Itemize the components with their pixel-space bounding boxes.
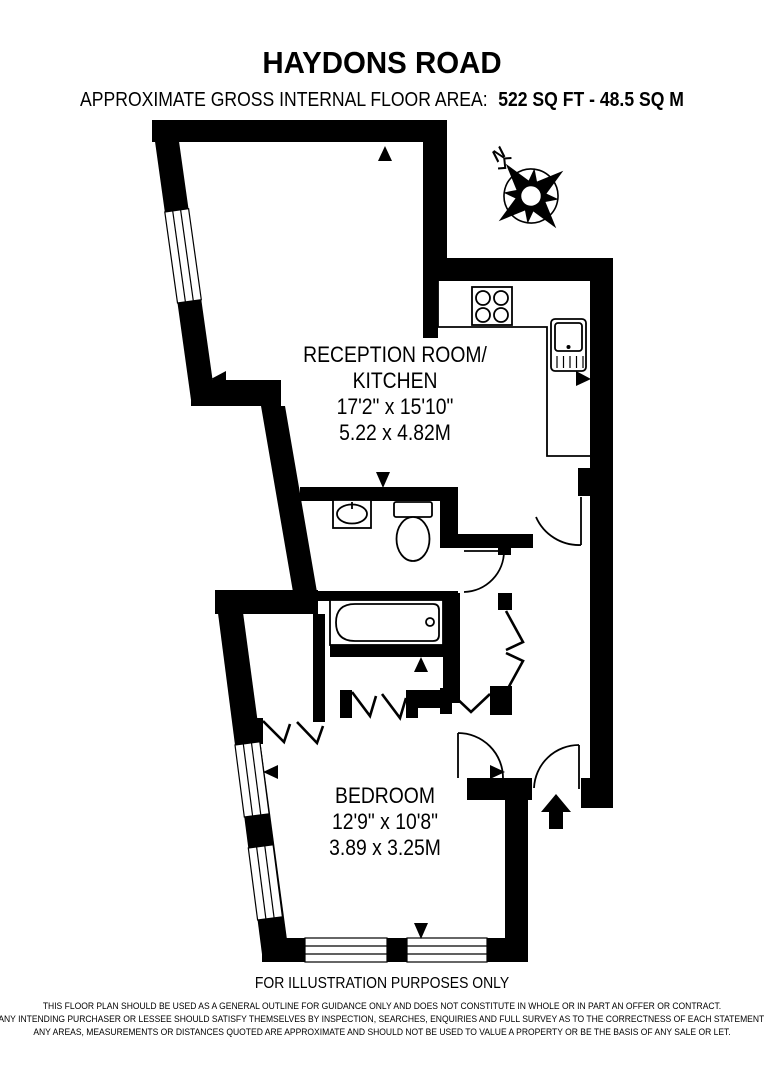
hob: [472, 287, 512, 325]
wall-kitchen-top: [423, 258, 613, 281]
bathtub: [330, 600, 443, 645]
door-arc: [534, 745, 579, 789]
page-title: HAYDONS ROAD: [262, 46, 501, 80]
wash-basin: [333, 500, 371, 528]
title-text: HAYDONS ROAD: [262, 46, 501, 80]
bifold-door: [506, 611, 523, 692]
measure-arrow: [376, 472, 390, 488]
room-dimensions-ft: 17'2" x 15'10": [337, 395, 454, 420]
north-label: N: [488, 143, 510, 166]
floorplan-page: HAYDONS ROAD APPROXIMATE GROSS INTERNAL …: [0, 0, 764, 1080]
measure-arrow: [414, 923, 428, 939]
floor-plan: HAYDONS ROAD APPROXIMATE GROSS INTERNAL …: [0, 0, 764, 1080]
wall-wardrobe-stub-1: [250, 718, 263, 744]
wall-wardrobe-stub-3: [406, 690, 418, 718]
door-arc: [464, 551, 504, 592]
toilet: [394, 502, 432, 561]
area-text: APPROXIMATE GROSS INTERNAL FLOOR AREA:52…: [80, 88, 684, 110]
wall-hall-upper: [440, 534, 533, 548]
wall-entry-right: [581, 778, 613, 808]
room-name: RECEPTION ROOM/: [303, 343, 487, 368]
room-label-bedroom: BEDROOM 12'9" x 10'8" 3.89 x 3.25M: [329, 784, 441, 861]
room-label-reception: RECEPTION ROOM/ KITCHEN 17'2" x 15'10" 5…: [303, 343, 487, 446]
window: [407, 938, 487, 962]
disclaimer-line: ANY AREAS, MEASUREMENTS OR DISTANCES QUO…: [33, 1027, 730, 1038]
room-dimensions-ft: 12'9" x 10'8": [332, 810, 438, 835]
area-value: 522 SQ FT - 48.5 SQ M: [498, 88, 684, 110]
compass-rose: N: [461, 122, 589, 254]
illustration-notice: FOR ILLUSTRATION PURPOSES ONLY: [255, 975, 509, 992]
area-subtitle: APPROXIMATE GROSS INTERNAL FLOOR AREA:52…: [80, 88, 684, 110]
room-dimensions-m: 5.22 x 4.82M: [339, 421, 451, 446]
window: [305, 938, 387, 962]
wall-wardrobe-stub-2: [340, 690, 352, 718]
wall-step-1: [191, 380, 281, 406]
wall-topright-vertical: [423, 120, 447, 268]
room-name: KITCHEN: [353, 369, 438, 394]
disclaimer-line: THIS FLOOR PLAN SHOULD BE USED AS A GENE…: [43, 1001, 721, 1012]
area-label: APPROXIMATE GROSS INTERNAL FLOOR AREA:: [80, 88, 488, 110]
kitchen-sink: [551, 319, 586, 371]
measure-arrow: [576, 371, 591, 386]
window: [235, 742, 269, 817]
measure-arrow: [378, 146, 392, 161]
disclaimer-line: ANY INTENDING PURCHASER OR LESSEE SHOULD…: [0, 1014, 764, 1025]
room-dimensions-m: 3.89 x 3.25M: [329, 836, 441, 861]
wall-doorframe-stub: [578, 468, 590, 496]
wall-closet-divider: [313, 614, 325, 722]
wall-bath-bottom: [330, 645, 460, 657]
notice-text: FOR ILLUSTRATION PURPOSES ONLY: [255, 975, 509, 992]
window: [165, 209, 202, 303]
door-arc: [536, 497, 581, 545]
measure-arrow: [414, 657, 428, 672]
disclaimer: THIS FLOOR PLAN SHOULD BE USED AS A GENE…: [0, 1001, 764, 1038]
wall-closet-stub-a: [498, 593, 512, 610]
wall-right: [590, 258, 613, 808]
room-name: BEDROOM: [335, 784, 435, 809]
entry-arrow: [541, 794, 571, 829]
wall-wardrobe-stub-4: [440, 688, 452, 714]
wall-bedroom-bottom: [262, 938, 528, 962]
wall-hall-bottom: [467, 778, 532, 800]
window: [248, 845, 282, 920]
wall-bathroom-top: [300, 487, 458, 501]
wall-closet-stub-b: [490, 686, 512, 715]
wall-top: [152, 120, 447, 142]
measure-arrow: [263, 765, 278, 779]
wall-bedroom-right: [505, 778, 528, 962]
